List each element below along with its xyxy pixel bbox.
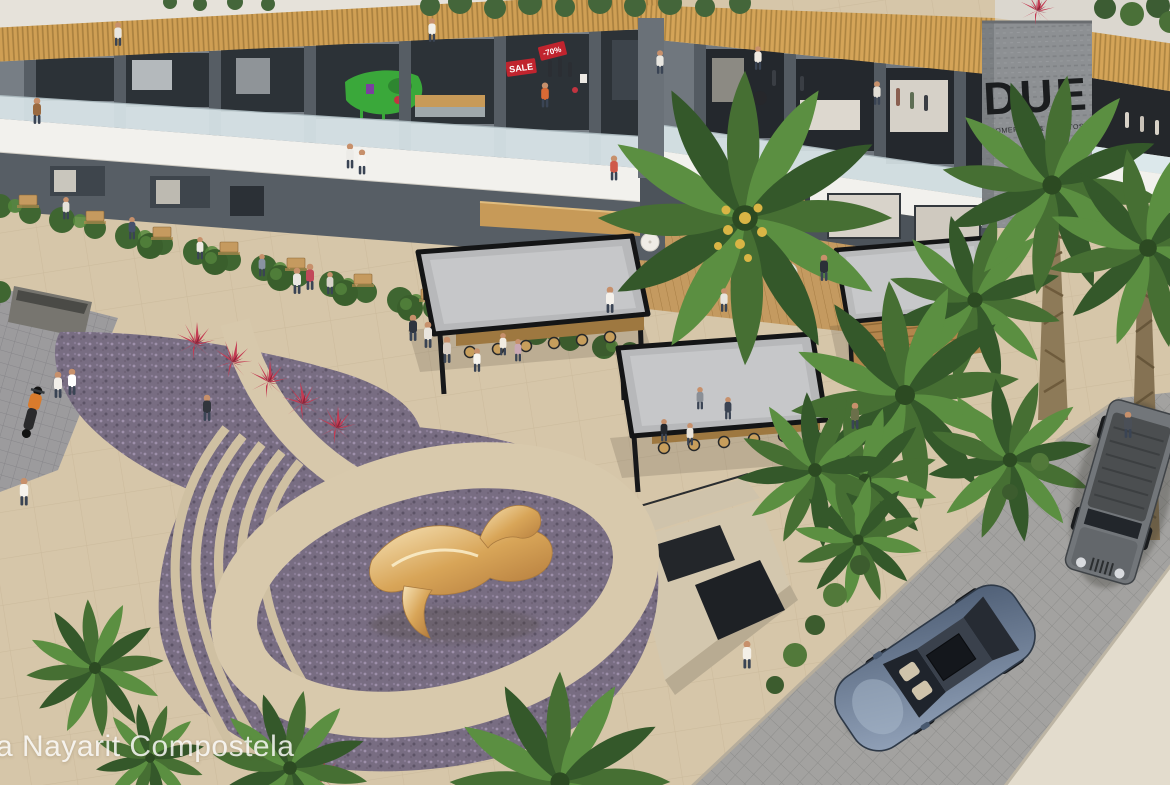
render-canvas: SALE -70%: [0, 0, 1170, 785]
due-sign-title: DUE: [982, 67, 1091, 124]
watermark: a Nayarit Compostela: [0, 730, 294, 764]
bar-base: [415, 107, 485, 117]
upper-bar-counter: [415, 95, 485, 109]
scene-svg: SALE -70%: [0, 0, 1170, 785]
